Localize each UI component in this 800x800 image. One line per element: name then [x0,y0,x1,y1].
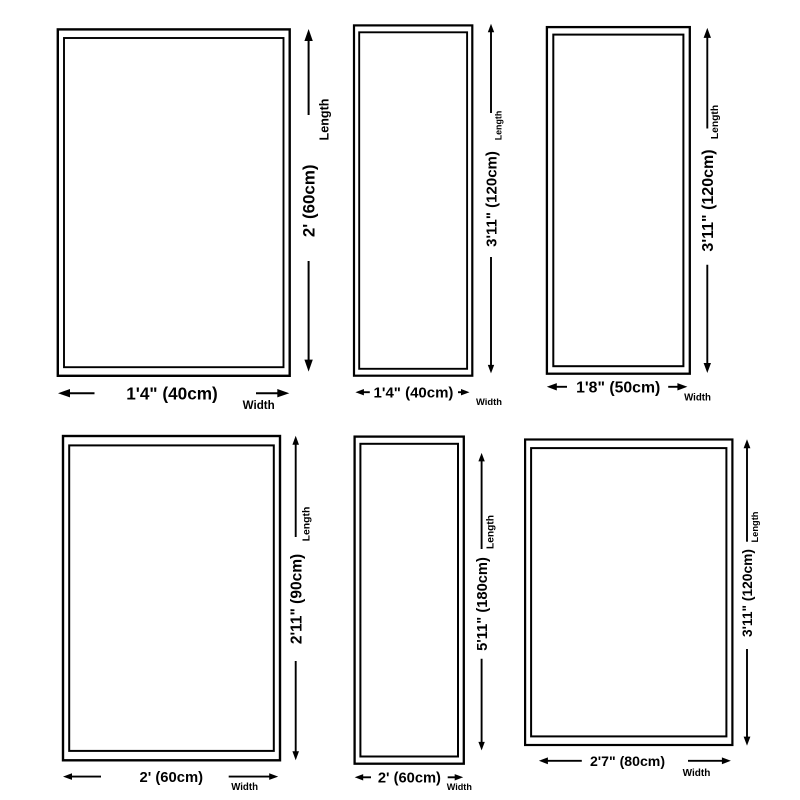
svg-text:3'11" (120cm): 3'11" (120cm) [483,151,500,247]
svg-text:Width: Width [447,782,472,792]
svg-text:2' (60cm): 2' (60cm) [300,165,319,238]
svg-text:Width: Width [683,768,711,779]
svg-text:2' (60cm): 2' (60cm) [378,771,441,787]
svg-text:Length: Length [302,507,313,542]
svg-text:2'11" (90cm): 2'11" (90cm) [288,554,305,644]
svg-text:Length: Length [318,99,332,141]
svg-text:3'11" (120cm): 3'11" (120cm) [740,549,755,637]
svg-text:1'4" (40cm): 1'4" (40cm) [126,383,218,403]
svg-text:Length: Length [750,511,760,542]
svg-text:Width: Width [684,392,711,403]
svg-text:2' (60cm): 2' (60cm) [140,770,204,786]
svg-text:2'7" (80cm): 2'7" (80cm) [590,753,665,769]
svg-text:Length: Length [710,105,721,139]
svg-text:5'11" (180cm): 5'11" (180cm) [475,557,491,651]
svg-text:Length: Length [494,111,504,141]
svg-text:Length: Length [486,515,497,549]
svg-text:1'4" (40cm): 1'4" (40cm) [374,385,454,402]
svg-text:Width: Width [476,396,502,407]
svg-text:Width: Width [243,399,275,412]
svg-text:Width: Width [231,782,258,793]
svg-text:3'11" (120cm): 3'11" (120cm) [700,149,717,251]
svg-text:1'8" (50cm): 1'8" (50cm) [576,379,660,396]
